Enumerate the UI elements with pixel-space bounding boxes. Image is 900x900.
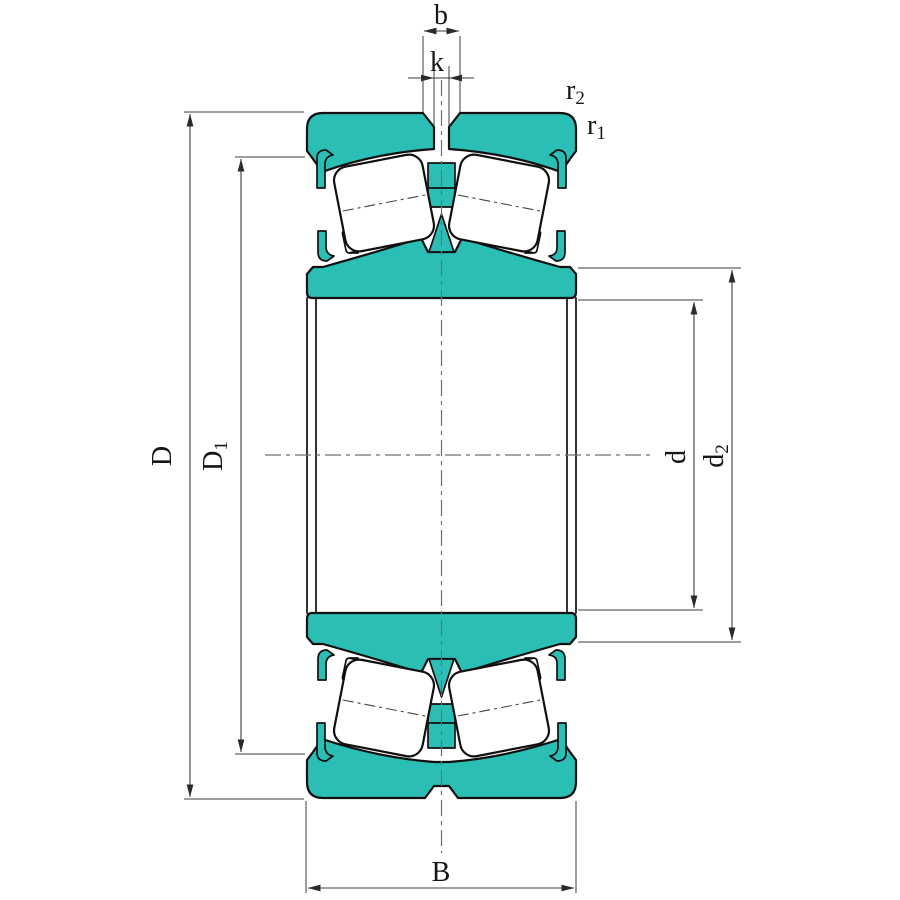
dim-label-D: D xyxy=(147,446,178,466)
dim-label-r2: r2 xyxy=(566,75,585,109)
dim-label-d2: d2 xyxy=(699,444,733,468)
bearing-engineering-drawing: b k r2 r1 D D1 d d2 xyxy=(0,0,900,900)
dim-label-d: d xyxy=(661,450,692,464)
dim-label-r1: r1 xyxy=(587,110,606,144)
dim-k: k xyxy=(408,47,474,78)
dim-label-k: k xyxy=(430,47,444,78)
dim-label-B: B xyxy=(432,857,451,888)
dim-label-D1: D1 xyxy=(198,441,232,471)
drawing-canvas: b k r2 r1 D D1 d d2 xyxy=(0,0,900,900)
dim-label-b: b xyxy=(434,0,448,31)
